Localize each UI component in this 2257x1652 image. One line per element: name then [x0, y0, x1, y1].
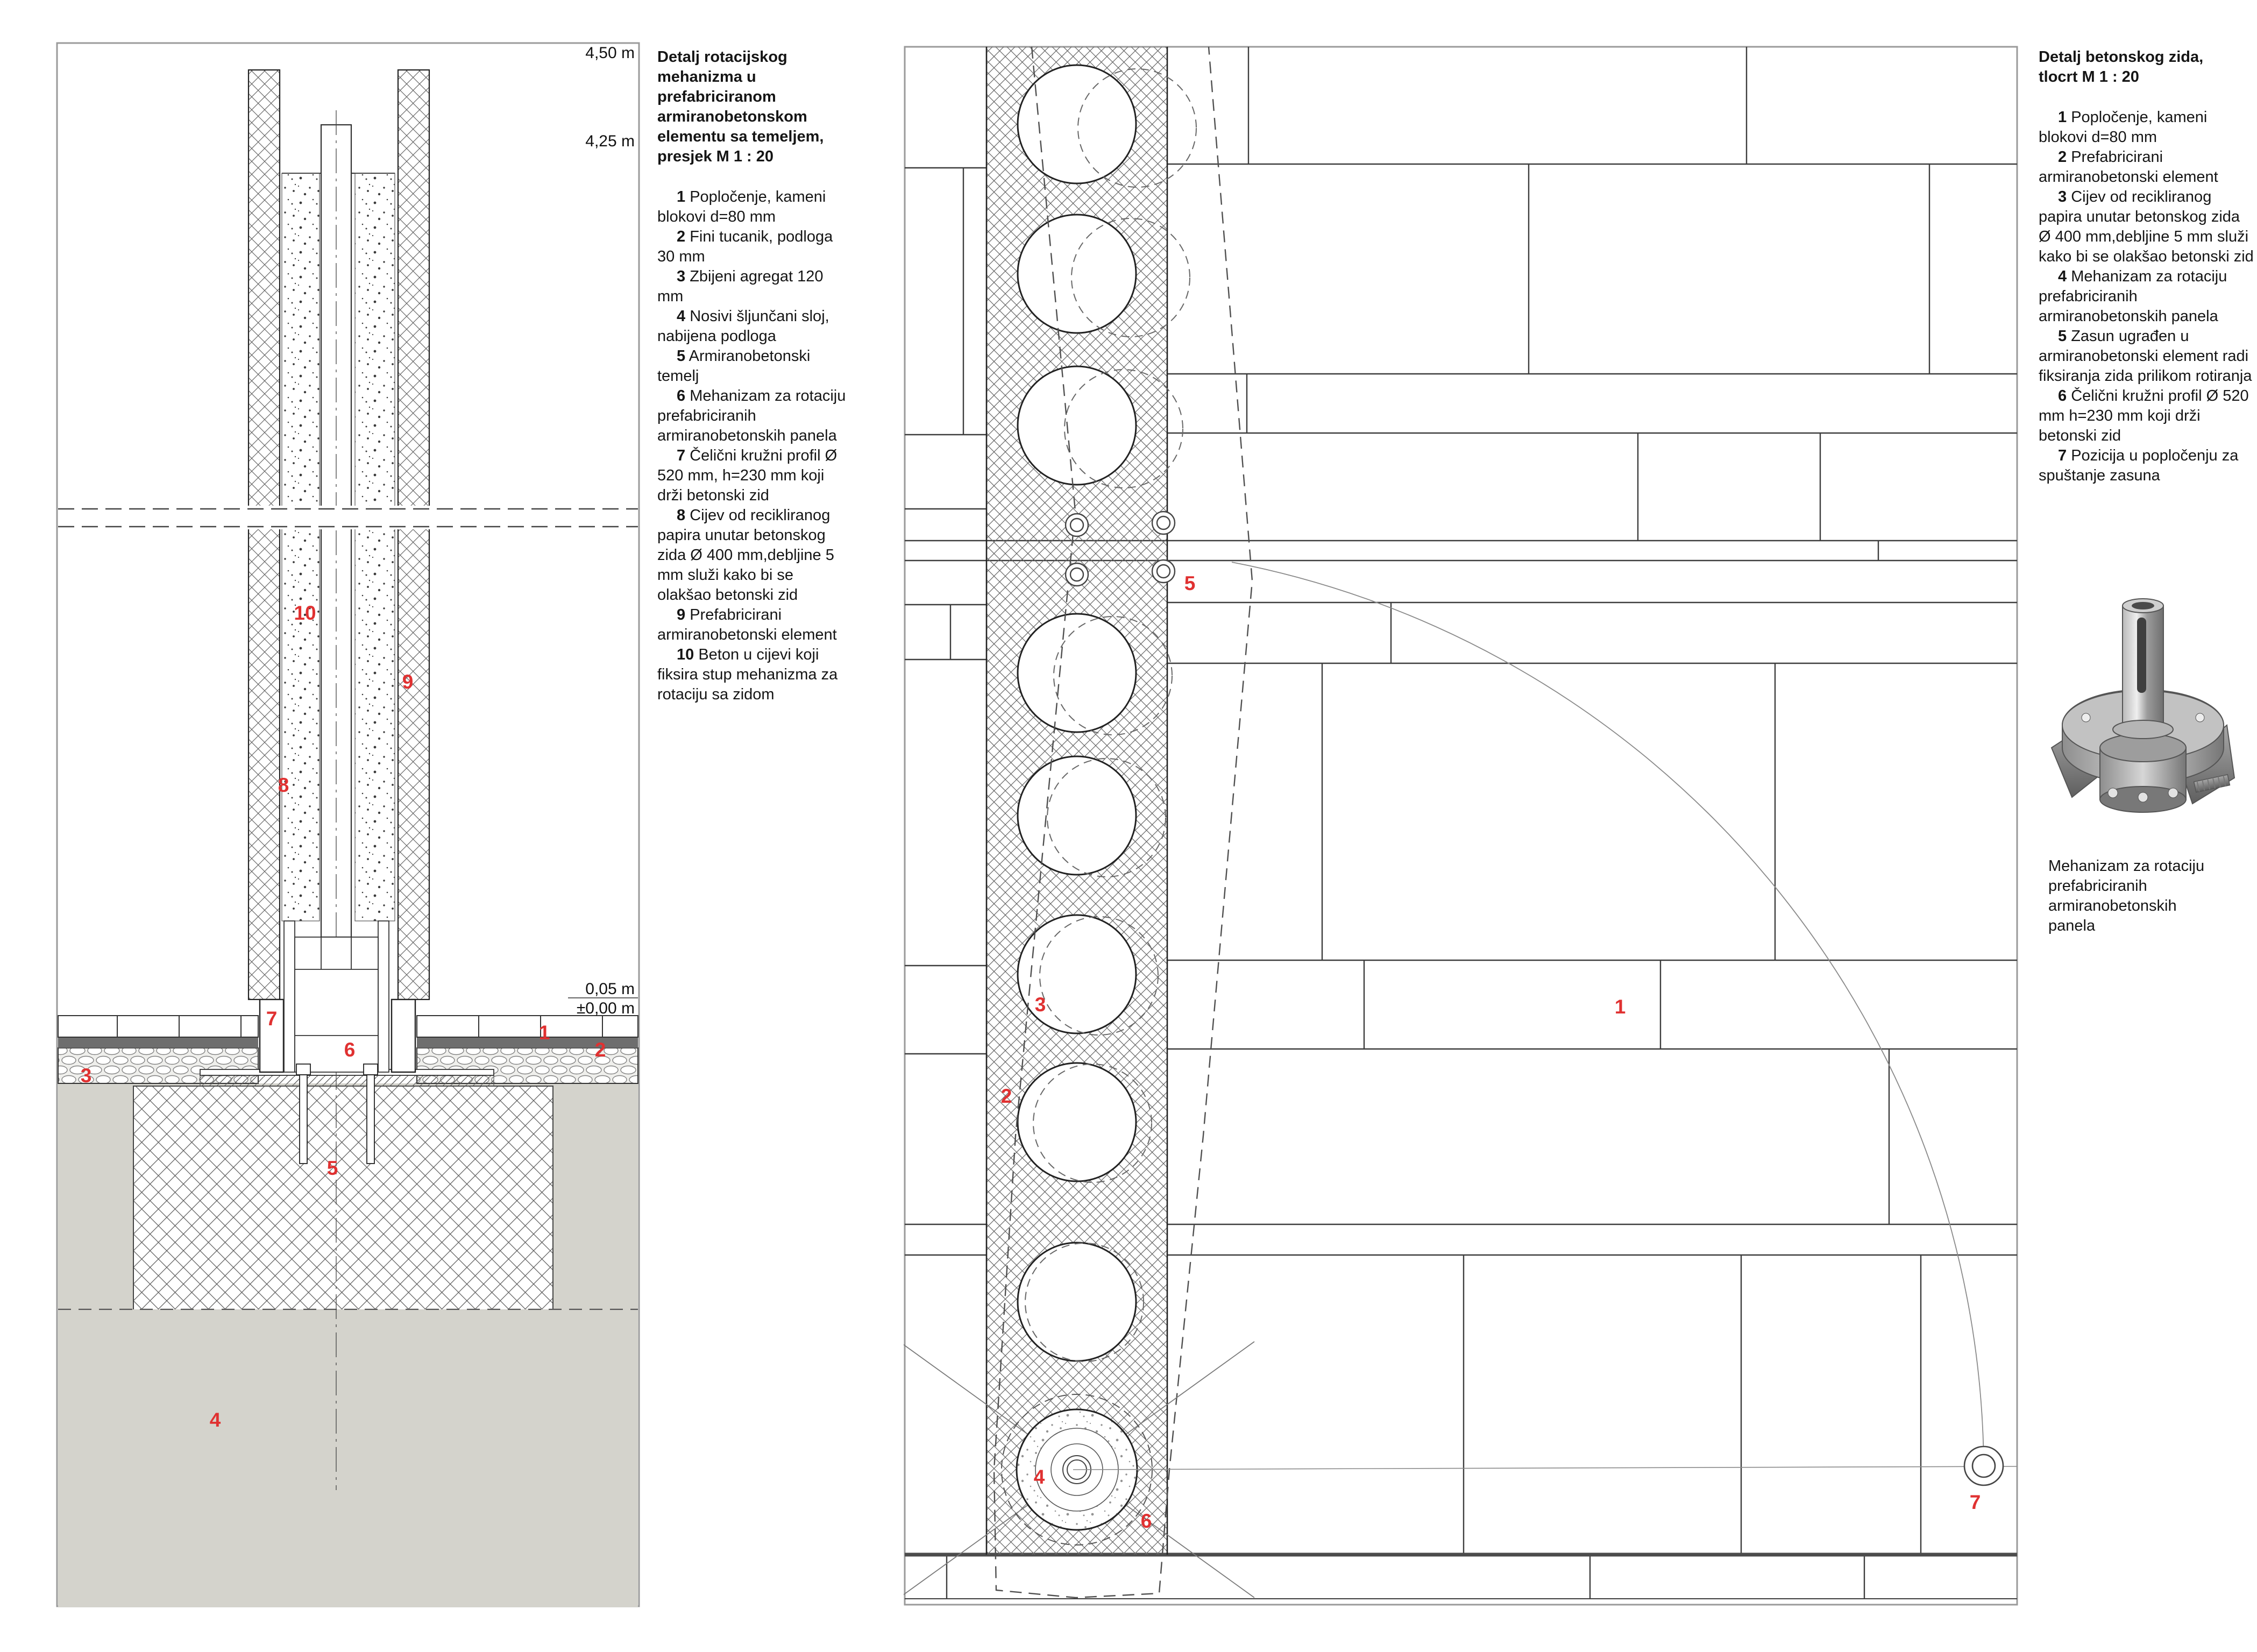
callout-10: 10 — [294, 602, 316, 624]
legend-item: 7 Pozicija u popločenju za spuštanje zas… — [2039, 446, 2254, 486]
section-legend-title: Detalj rotacijskog mehanizma u prefabric… — [657, 47, 847, 167]
drawing-sheet: { "colors": { "callout_red": "#e03131", … — [0, 0, 2257, 1652]
legend-item: 1 Popločenje, kameni blokovi d=80 mm — [2039, 108, 2254, 147]
callout-5: 5 — [327, 1157, 338, 1179]
plan-legend: Detalj betonskog zida, tlocrt M 1 : 20 1… — [2039, 47, 2254, 486]
plan-drawing: 1 2 3 4 5 6 7 — [904, 46, 2018, 1606]
legend-item: 4 Mehanizam za rotaciju prefabriciranih … — [2039, 267, 2254, 327]
rotation-mechanism-photo — [2048, 586, 2238, 845]
foundation-block — [133, 1086, 553, 1309]
callout-1: 1 — [539, 1022, 550, 1044]
dim-450: 4,50 m — [585, 44, 635, 62]
legend-item: 4 Nosivi šljunčani sloj, nabijena podlog… — [657, 307, 847, 346]
callout-2: 2 — [595, 1039, 606, 1061]
dim-000: ±0,00 m — [577, 999, 635, 1017]
legend-item: 3 Zbijeni agregat 120 mm — [657, 267, 847, 307]
legend-item: 3 Cijev od recikliranog papira unutar be… — [2039, 187, 2254, 267]
callout-3: 3 — [1035, 994, 1046, 1016]
callout-4: 4 — [210, 1409, 221, 1431]
plan-legend-title: Detalj betonskog zida, tlocrt M 1 : 20 — [2039, 47, 2254, 87]
legend-item: 2 Prefabricirani armiranobetonski elemen… — [2039, 147, 2254, 187]
legend-item: 7 Čelični kružni profil Ø 520 mm, h=230 … — [657, 446, 847, 506]
legend-item: 10 Beton u cijevi koji fiksira stup meha… — [657, 645, 847, 705]
photo-caption: Mehanizam za rotaciju prefabriciranih ar… — [2048, 856, 2242, 936]
legend-item: 6 Mehanizam za rotaciju prefabriciranih … — [657, 386, 847, 446]
callout-7: 7 — [266, 1008, 278, 1030]
legend-item: 5 Armiranobetonski temelj — [657, 346, 847, 386]
callout-9: 9 — [402, 671, 414, 693]
dim-425: 4,25 m — [585, 132, 635, 150]
callout-3: 3 — [81, 1065, 92, 1087]
zasun-paving-position — [1964, 1447, 2003, 1485]
legend-item: 1 Popločenje, kameni blokovi d=80 mm — [657, 187, 847, 227]
section-legend: Detalj rotacijskog mehanizma u prefabric… — [657, 47, 847, 705]
steel-profile-right — [392, 999, 415, 1072]
dim-005: 0,05 m — [585, 980, 635, 998]
callout-4: 4 — [1034, 1466, 1045, 1488]
callout-6: 6 — [344, 1039, 356, 1061]
legend-item: 8 Cijev od recikliranog papira unutar be… — [657, 506, 847, 605]
legend-item: 9 Prefabricirani armiranobetonski elemen… — [657, 605, 847, 645]
callout-2: 2 — [1001, 1085, 1012, 1107]
callout-7: 7 — [1970, 1491, 1981, 1513]
callout-8: 8 — [278, 774, 289, 796]
callout-6: 6 — [1141, 1510, 1152, 1532]
section-break — [58, 506, 638, 529]
section-drawing: 4,50 m 4,25 m 0,05 m ±0,00 m 1 2 3 4 5 6… — [56, 42, 640, 1607]
legend-item: 5 Zasun ugrađen u armiranobetonski eleme… — [2039, 327, 2254, 386]
legend-item: 6 Čelični kružni profil Ø 520 mm h=230 m… — [2039, 386, 2254, 446]
callout-5: 5 — [1184, 572, 1196, 594]
legend-item: 2 Fini tucanik, podloga 30 mm — [657, 227, 847, 267]
callout-1: 1 — [1615, 996, 1626, 1018]
